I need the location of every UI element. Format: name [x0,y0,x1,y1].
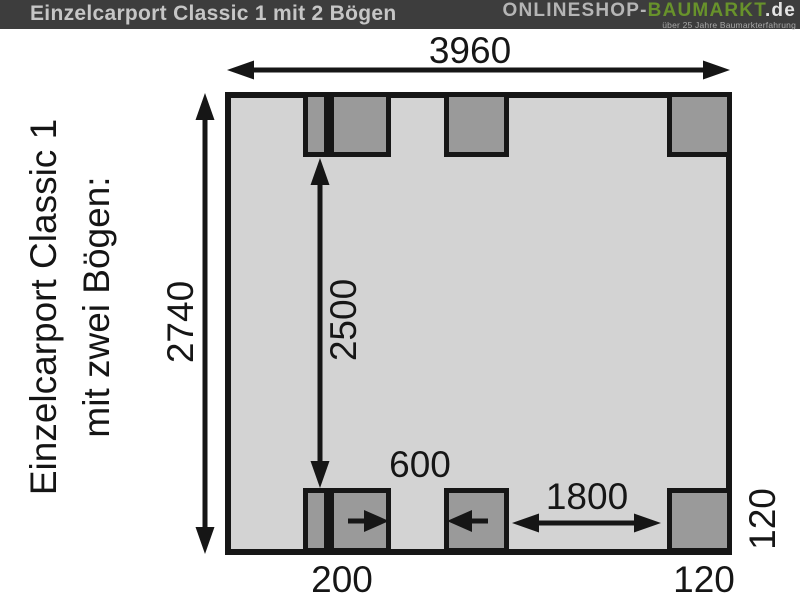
post-top-narrow [306,95,327,155]
product-diagram-image: Einzelcarport Classic 1 mit 2 Bögen ONLI… [0,0,800,600]
arrowhead-left-icon [227,61,254,80]
post-top-middle [447,95,507,155]
dim-post-gap-small-label: 600 [389,444,451,485]
dim-total-depth-label: 2740 [160,281,201,363]
post-top-right [670,95,730,155]
arrowhead-up-icon [196,93,215,120]
dim-post-gap-large-label: 1800 [546,476,628,517]
post-top-wide [332,95,389,155]
dim-post-width-label: 120 [673,559,735,600]
arrowhead-down-icon [196,527,215,554]
dim-total-width-label: 3960 [429,30,511,71]
arrowhead-right-icon [703,61,730,80]
dim-post-group-width-label: 200 [311,559,373,600]
dim-post-depth-label: 120 [742,488,783,550]
dim-inner-span-label: 2500 [323,279,364,361]
plan-outline [228,95,729,552]
post-bottom-narrow [306,491,327,551]
carport-floor-plan: 3960 2740 2500 600 1800 [0,0,800,600]
post-bottom-right [670,491,730,551]
